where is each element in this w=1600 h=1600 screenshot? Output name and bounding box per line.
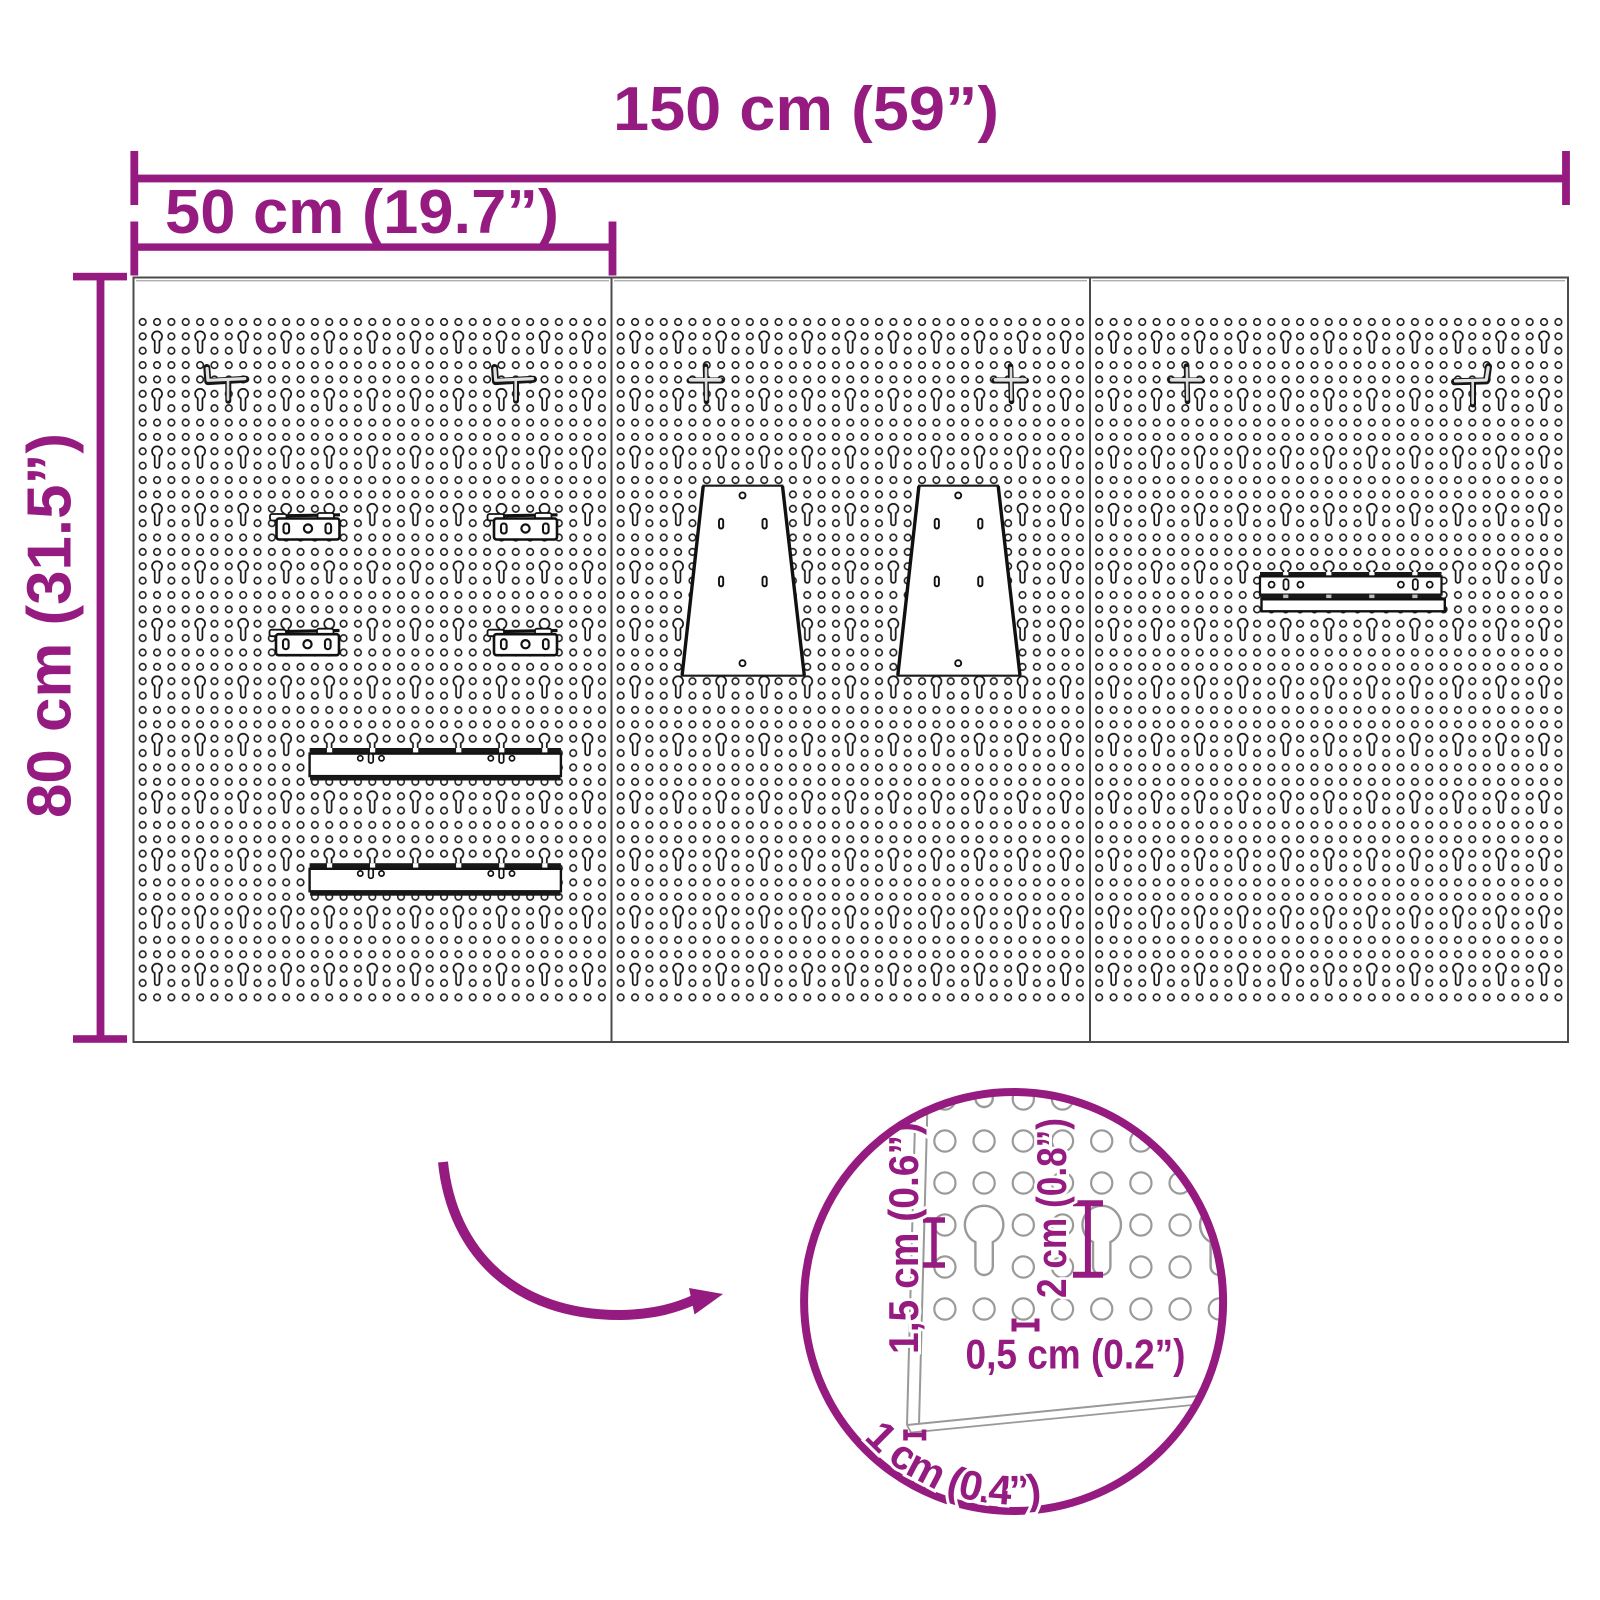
svg-text:2 cm (0.8”): 2 cm (0.8”) bbox=[1028, 1118, 1075, 1298]
svg-text:150 cm (59”): 150 cm (59”) bbox=[613, 75, 999, 144]
svg-text:80 cm (31.5”): 80 cm (31.5”) bbox=[16, 433, 85, 818]
svg-text:0,5 cm (0.2”): 0,5 cm (0.2”) bbox=[966, 1330, 1186, 1377]
svg-text:50 cm (19.7”): 50 cm (19.7”) bbox=[165, 178, 559, 247]
svg-text:1,5 cm (0.6”): 1,5 cm (0.6”) bbox=[880, 1122, 927, 1354]
